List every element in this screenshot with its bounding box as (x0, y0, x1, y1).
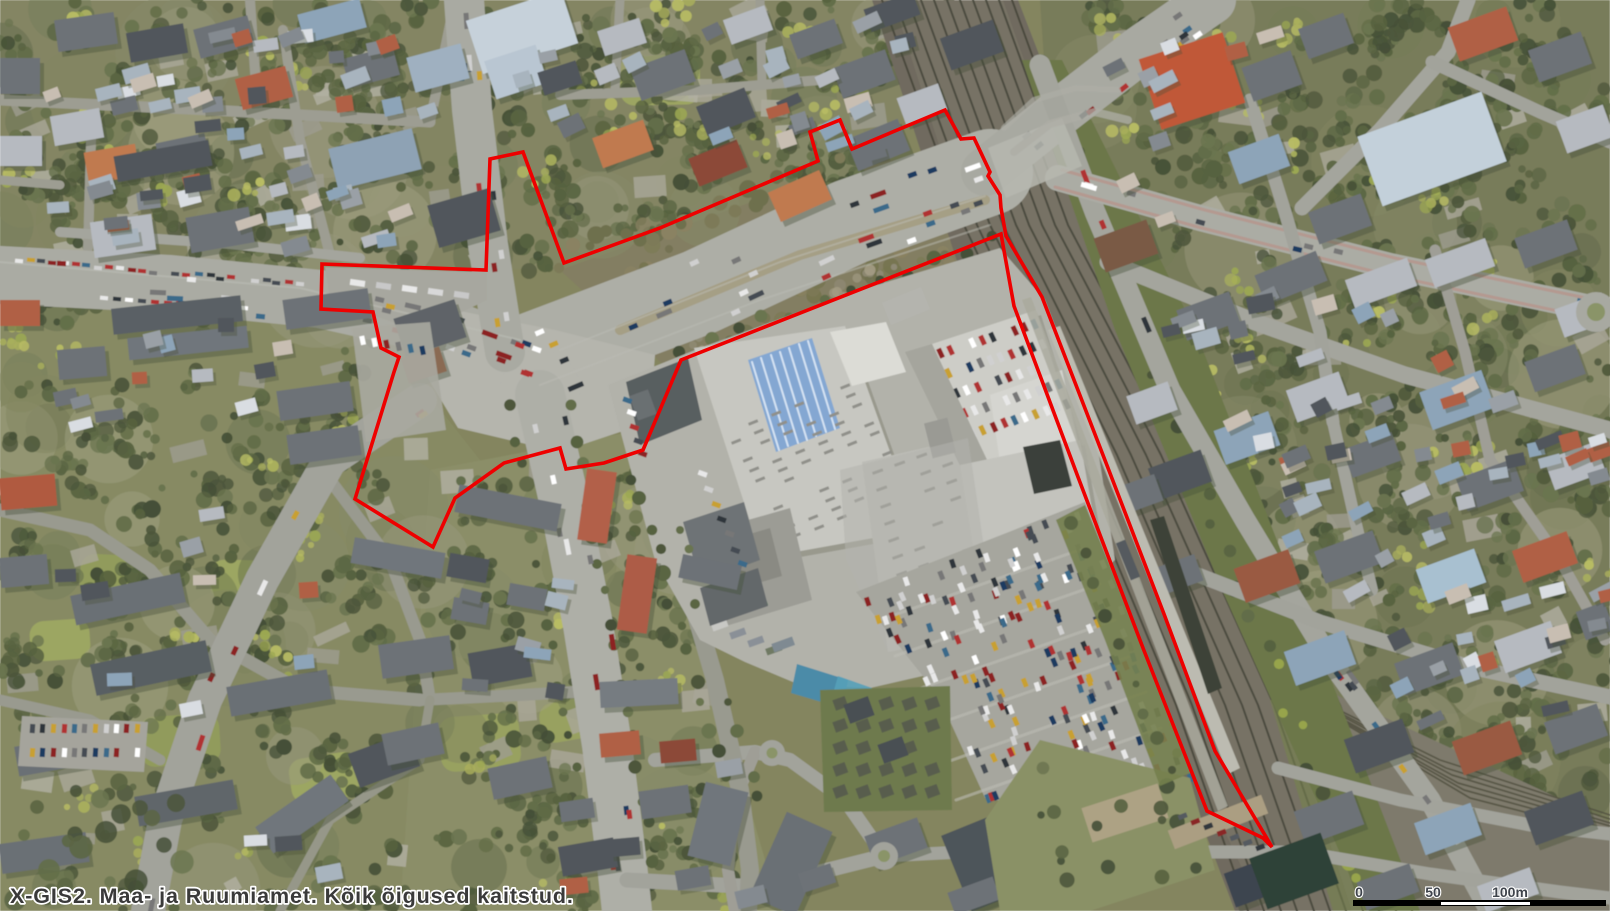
svg-text:100m: 100m (1492, 884, 1528, 900)
svg-text:50: 50 (1425, 884, 1441, 900)
svg-text:X-GIS2. Maa- ja Ruumiamet. Kõi: X-GIS2. Maa- ja Ruumiamet. Kõik õigused … (10, 884, 574, 908)
svg-text:0: 0 (1355, 884, 1363, 900)
